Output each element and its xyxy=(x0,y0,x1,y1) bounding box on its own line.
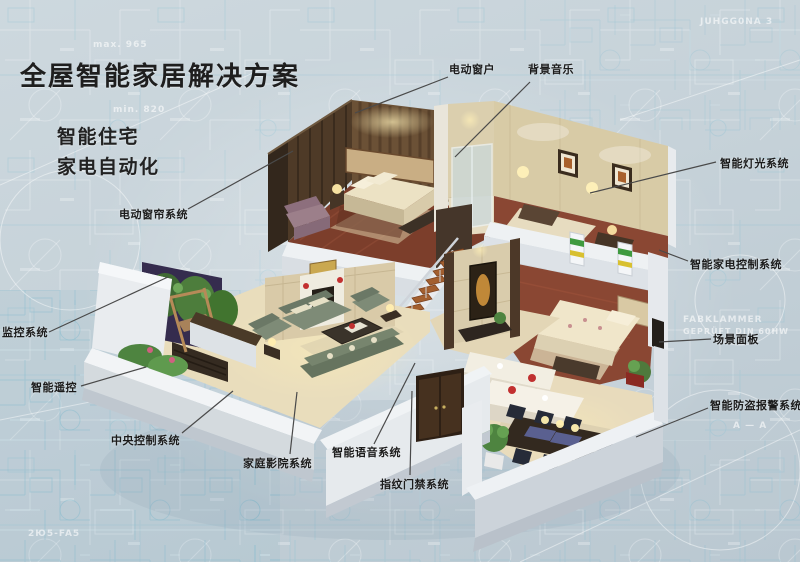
leader-appliance-control xyxy=(659,250,688,261)
callout-fingerprint-access: 指纹门禁系统 xyxy=(380,476,449,492)
callout-central-control: 中央控制系统 xyxy=(111,432,180,448)
leader-burglar-alarm xyxy=(636,408,708,437)
callout-smart-remote: 智能遥控 xyxy=(31,379,77,395)
callout-background-music: 背景音乐 xyxy=(528,61,574,77)
page-title: 全屋智能家居解决方案 xyxy=(20,56,300,93)
callout-appliance-control: 智能家电控制系统 xyxy=(690,256,782,272)
callout-electric-curtain: 电动窗帘系统 xyxy=(119,206,188,222)
callout-home-theater: 家庭影院系统 xyxy=(243,455,312,471)
leader-smart-lighting xyxy=(590,162,716,193)
leader-fingerprint xyxy=(410,391,412,475)
leader-home-theater xyxy=(290,392,297,454)
callout-monitoring-system: 监控系统 xyxy=(2,324,48,340)
leader-voice-system xyxy=(374,363,415,444)
callout-scene-panel: 场景面板 xyxy=(713,331,759,347)
subtitle-appliance-automation: 家电自动化 xyxy=(57,152,160,179)
callout-electric-window: 电动窗户 xyxy=(449,61,495,77)
leader-scene-panel xyxy=(659,339,711,342)
callout-burglar-alarm: 智能防盗报警系统 xyxy=(710,397,800,413)
callout-voice-system: 智能语音系统 xyxy=(332,444,401,460)
leader-electric-window xyxy=(355,77,448,113)
leader-electric-curtain xyxy=(188,151,293,209)
leader-background-music xyxy=(455,82,530,157)
leader-smart-remote xyxy=(81,367,146,386)
leader-monitoring xyxy=(49,277,168,332)
leader-central-control xyxy=(182,391,233,433)
subtitle-smart-residence: 智能住宅 xyxy=(57,122,139,149)
callout-smart-lighting: 智能灯光系统 xyxy=(720,155,789,171)
smart-home-poster: max. 965 min. 820 A — A FABKLAMMER GEPRÜ… xyxy=(0,0,800,562)
